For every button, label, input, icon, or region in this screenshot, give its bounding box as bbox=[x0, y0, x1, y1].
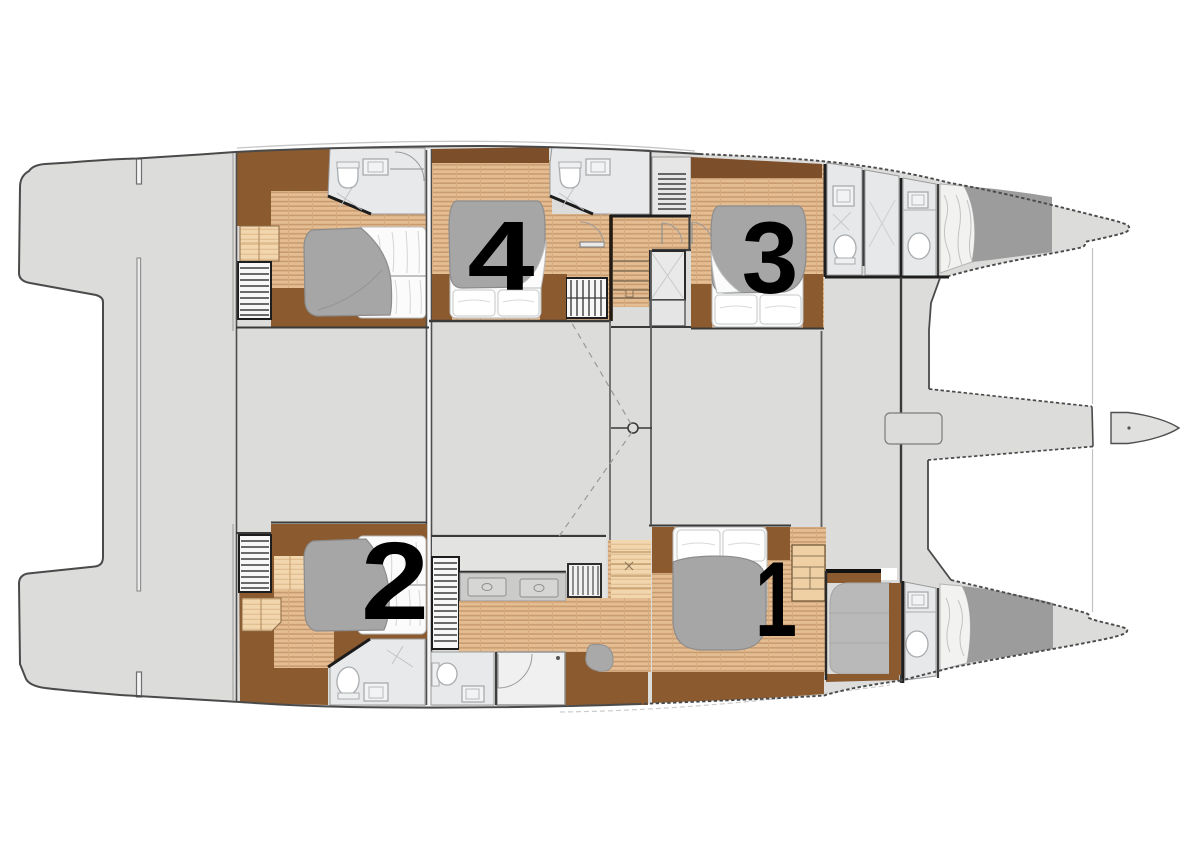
svg-text:1: 1 bbox=[755, 539, 797, 659]
svg-text:4: 4 bbox=[468, 201, 535, 311]
svg-text:2: 2 bbox=[361, 520, 429, 643]
svg-text:3: 3 bbox=[742, 201, 799, 315]
